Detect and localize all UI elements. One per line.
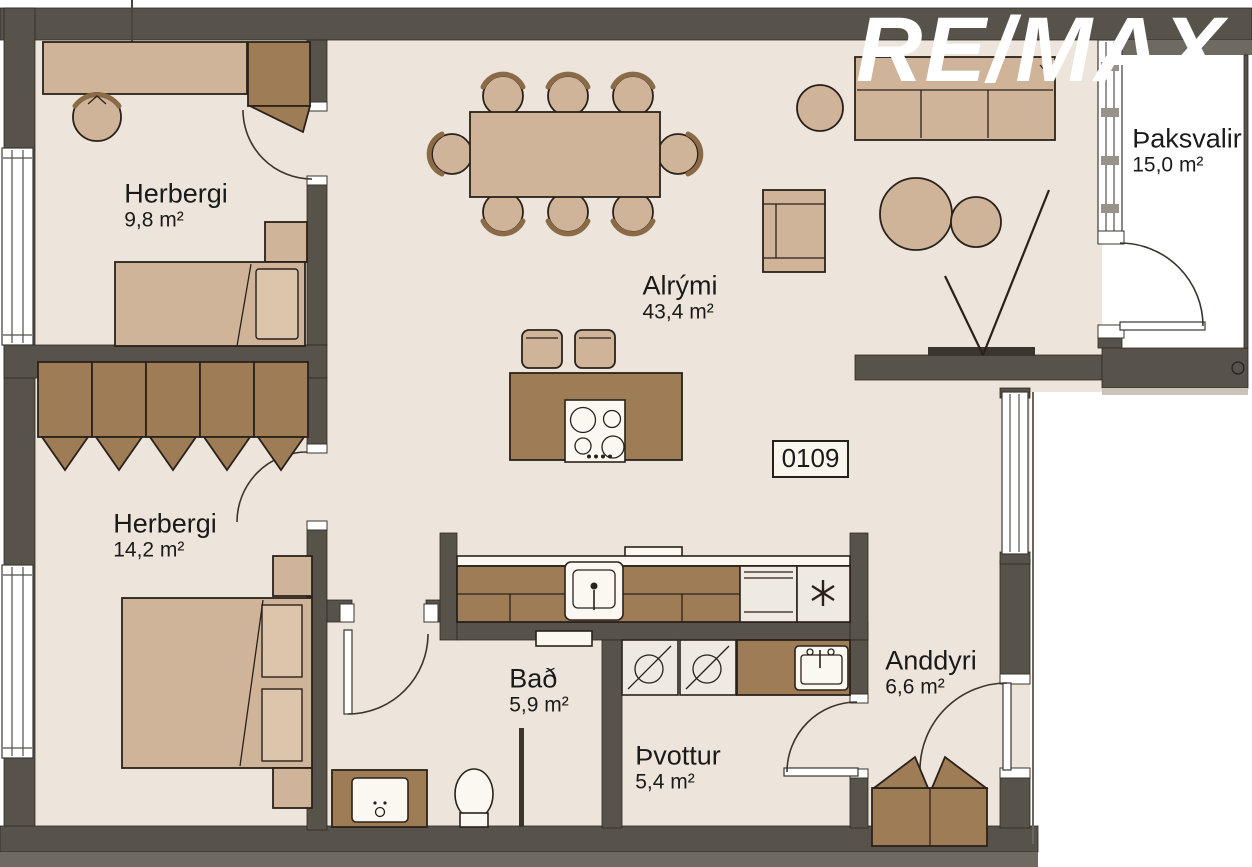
wall-laundry-right-lower	[850, 772, 868, 828]
bathroom-cabinet	[536, 631, 592, 646]
room-name: Herbergi	[124, 180, 228, 208]
room-area: 15,0 m²	[1132, 153, 1242, 178]
dishwasher	[740, 566, 797, 622]
room-label-herbergi-1: Herbergi 9,8 m²	[124, 180, 228, 233]
room-label-anddyri: Anddyri 6,6 m²	[885, 647, 977, 700]
remax-logo: RE/MAX	[856, 0, 1226, 100]
stove-icon	[565, 400, 625, 462]
room-label-herbergi-2: Herbergi 14,2 m²	[113, 510, 217, 563]
nightstand-bedroom1	[265, 222, 307, 262]
armchair	[763, 190, 825, 272]
bar-stool	[522, 330, 562, 368]
room-label-bad: Bað 5,9 m²	[509, 665, 569, 718]
toilet	[455, 769, 493, 827]
wall-kitchen-right	[850, 533, 868, 640]
wall-bedroom1-right-lower	[307, 177, 327, 345]
room-area: 43,4 m²	[643, 300, 718, 325]
door-balcony	[1120, 243, 1203, 326]
dryer-icon	[680, 640, 736, 695]
dining-table	[470, 112, 660, 197]
bed-single	[115, 262, 305, 346]
coffee-table-small	[951, 197, 1001, 247]
room-name: Þvottur	[635, 742, 721, 770]
room-name: Bað	[509, 665, 569, 693]
room-area: 9,8 m²	[124, 208, 228, 233]
wall-bottom-outer	[0, 852, 1038, 867]
bar-stool	[575, 330, 615, 368]
room-name: Anddyri	[885, 647, 977, 675]
desk	[43, 42, 247, 94]
room-name: Alrými	[643, 272, 718, 300]
unit-number-badge: 0109	[772, 440, 849, 478]
floorplan-drawing	[0, 0, 1252, 867]
vanity-sink	[332, 770, 427, 827]
window-entry	[1002, 392, 1028, 554]
nightstand-bedroom2-bottom	[273, 768, 312, 808]
wall-entry-right-upper	[1000, 560, 1030, 683]
floorplan-page: Herbergi 9,8 m² Herbergi 14,2 m² Alrými …	[0, 0, 1252, 867]
section-marker-line	[131, 0, 133, 45]
nightstand-bedroom2-top	[273, 556, 312, 596]
desk-chair	[73, 93, 121, 141]
room-label-thvottur: Þvottur 5,4 m²	[635, 742, 721, 795]
room-name: Herbergi	[113, 510, 217, 538]
counter-back-edge	[457, 556, 850, 566]
laundry-sink	[795, 646, 848, 690]
room-area: 14,2 m²	[113, 538, 217, 563]
coffee-table-large	[880, 178, 952, 250]
room-area: 5,9 m²	[509, 693, 569, 718]
wall-bath-laundry-divider	[602, 640, 622, 828]
fridge-freezer	[797, 566, 850, 622]
wall-balcony-parapet	[1102, 348, 1248, 388]
room-name: Þaksvalir	[1132, 125, 1242, 153]
wall-kitchen-bottom	[457, 622, 868, 640]
wardrobe-bedroom1	[248, 42, 310, 106]
wall-kitchen-left	[440, 533, 457, 640]
side-table	[797, 85, 843, 131]
wall-bedroom2-right-upper	[307, 378, 327, 450]
wall-entry-right-lower	[1000, 770, 1030, 828]
wall-laundry-right-upper	[850, 640, 868, 702]
room-label-alrymi: Alrými 43,4 m²	[643, 272, 718, 325]
parapet-inner-edge	[1102, 388, 1248, 395]
window-bedroom1	[2, 148, 33, 345]
washer-icon	[622, 640, 678, 695]
kitchen-sink	[565, 562, 623, 620]
kitchen-island	[510, 373, 682, 462]
room-label-thaksvalir: Þaksvalir 15,0 m²	[1132, 125, 1242, 178]
room-area: 6,6 m²	[885, 675, 977, 700]
balcony-right-edge	[1244, 55, 1248, 348]
wall-tv-halfwall	[855, 355, 1102, 380]
shower-partition	[519, 728, 524, 827]
roof-edge-line	[1032, 392, 1034, 844]
laundry-fixtures	[622, 640, 850, 695]
room-area: 5,4 m²	[635, 770, 721, 795]
window-bedroom2	[2, 565, 33, 758]
bed-double	[122, 598, 312, 768]
